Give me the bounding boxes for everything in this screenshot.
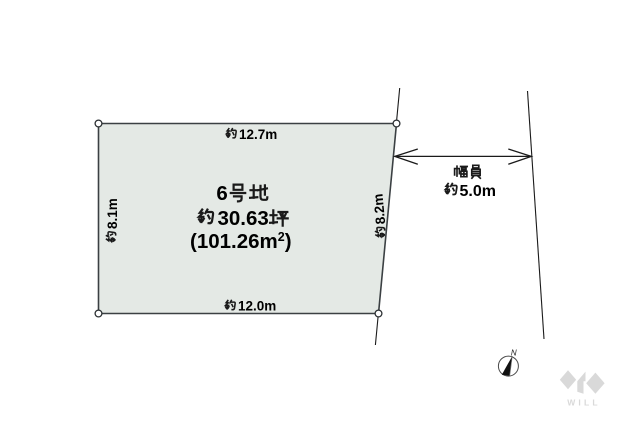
- svg-text:N: N: [511, 348, 517, 357]
- svg-text:WILL: WILL: [567, 398, 601, 408]
- svg-text:8.2m: 8.2m: [370, 193, 388, 225]
- svg-text:12.7m: 12.7m: [239, 127, 277, 142]
- svg-text:30.63: 30.63: [218, 207, 269, 230]
- svg-text:5.0m: 5.0m: [460, 183, 496, 200]
- svg-text:6: 6: [216, 182, 227, 205]
- svg-text:12.0m: 12.0m: [238, 299, 276, 314]
- svg-text:8.1m: 8.1m: [105, 198, 120, 229]
- svg-text:(101.26m2): (101.26m2): [190, 230, 292, 253]
